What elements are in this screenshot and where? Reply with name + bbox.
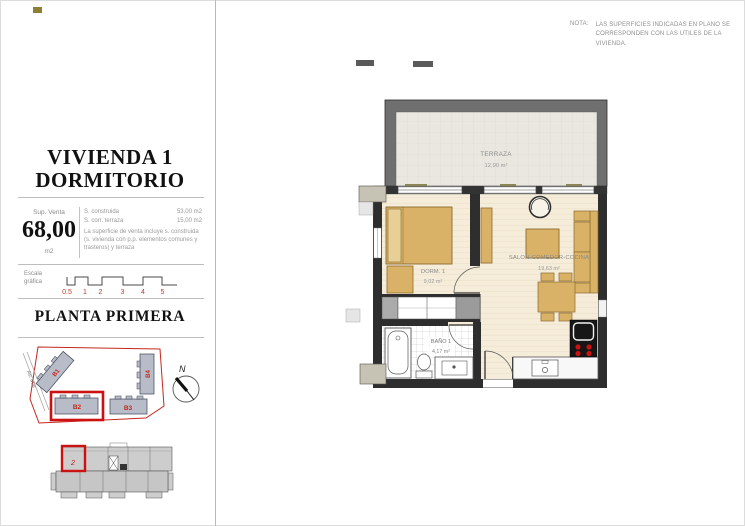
graphic-scale-label: Escala gráfica — [24, 271, 42, 287]
wardrobe-wall-bottom — [382, 319, 480, 322]
note-line-2: CORRESPONDEN CON LAS UTILES DE LA VIVIEN… — [596, 30, 745, 49]
north-arrow: N — [173, 364, 199, 402]
surface-footnote: La superficie de venta incluye s. constr… — [84, 228, 202, 252]
surface-note-disclaimer: NOTA: LAS SUPERFICIES INDICADAS EN PLANO… — [570, 21, 745, 49]
exterior-unit-box — [346, 309, 360, 322]
site-plan: Av. Mar B1 B4 B2 — [18, 338, 206, 430]
kitchen-counter — [513, 357, 598, 379]
key-unit-mark: 2 — [70, 460, 75, 467]
sofa — [574, 211, 598, 293]
scale-tick-numbers: 0.5 1 2 3 4 5 — [62, 289, 164, 296]
room-label-bano: BAÑO 1 — [431, 338, 451, 345]
room-label-terraza: TERRAZA — [480, 151, 512, 158]
scale-tick: 3 — [121, 289, 125, 296]
wall-left — [373, 194, 382, 388]
unit-title-line1: VIVIENDA 1 — [15, 146, 205, 169]
scale-label-line1: Escala — [24, 271, 42, 279]
scale-step-line — [67, 277, 177, 285]
toilet — [416, 354, 432, 378]
building-key-plan: 2 — [18, 438, 186, 518]
building-b4: B4 — [137, 354, 154, 394]
graphic-scale-bar: 0.5 1 2 3 4 5 — [55, 266, 190, 298]
room-area-dorm: 9,02 m² — [424, 279, 443, 285]
divider-line — [18, 264, 204, 265]
bed — [386, 207, 452, 264]
scale-tick: 4 — [141, 289, 145, 296]
building-b1: B1 — [34, 349, 74, 392]
building-label: B3 — [124, 405, 133, 412]
scale-label-line2: gráfica — [24, 279, 42, 287]
room-area-salon: 19,63 m² — [538, 266, 560, 272]
room-label-dorm: DORM. 1 — [421, 269, 445, 275]
building-label: B2 — [73, 404, 82, 411]
divider-line — [18, 298, 204, 299]
scale-tick: 5 — [161, 289, 165, 296]
surface-row-label: S. corr. terraza — [84, 217, 123, 226]
wall-bottom-left — [373, 379, 483, 388]
room-area-bano: 4,17 m² — [432, 349, 450, 355]
panel-divider — [215, 0, 216, 526]
page-corner-mark — [33, 7, 42, 13]
north-label: N — [179, 364, 186, 374]
surface-row: S. corr. terraza 15,00 m2 — [84, 217, 202, 226]
sale-surface-value: 68,00 — [20, 217, 78, 244]
entrance-opening — [483, 379, 513, 388]
room-label-salon: SALON-COMEDOR-COCINA — [509, 255, 589, 261]
hall-wardrobe — [382, 297, 480, 319]
left-wall-window — [374, 228, 382, 258]
wall-bath-top — [382, 322, 448, 326]
surface-row-value: 53,00 m2 — [177, 208, 202, 217]
tv-cabinet — [481, 208, 492, 263]
apartment-floor-plan: TERRAZA 12,90 m² — [340, 50, 720, 440]
room-area-terraza: 12,90 m² — [485, 163, 508, 169]
wall-bottom-right — [513, 379, 607, 388]
scale-tick: 2 — [99, 289, 103, 296]
wall-dorm-salon — [470, 194, 480, 266]
surface-row-label: S. construida — [84, 208, 119, 217]
floor-title: PLANTA PRIMERA — [15, 308, 205, 326]
window-glazing — [398, 187, 594, 193]
divider-line — [18, 197, 204, 198]
scale-tick: 1 — [83, 289, 87, 296]
bathroom: BAÑO 1 4,17 m² — [382, 326, 473, 379]
sale-surface-unit: m2 — [20, 248, 78, 255]
scale-tick: 0.5 — [62, 289, 72, 296]
bathroom-vanity — [435, 357, 473, 379]
right-wall-niche — [599, 300, 607, 317]
plan-sheet: NOTA: LAS SUPERFICIES INDICADAS EN PLANO… — [0, 0, 745, 526]
surface-block-divider — [79, 207, 80, 258]
surface-rows: S. construida 53,00 m2 S. corr. terraza … — [84, 208, 202, 225]
note-prefix: NOTA: — [570, 21, 589, 49]
building-b2-highlighted: B2 — [51, 392, 103, 420]
note-line-1: LAS SUPERFICIES INDICADAS EN PLANO SE — [596, 21, 745, 30]
wall-right — [598, 194, 607, 388]
wardrobe-wall-top — [382, 294, 480, 297]
sale-surface-label: Sup. Venta — [20, 209, 78, 216]
bathtub — [385, 328, 411, 378]
terrace: TERRAZA 12,90 m² — [385, 100, 607, 186]
wall-bath-right — [473, 322, 481, 379]
upper-wall-stubs — [356, 60, 433, 67]
building-b3: B3 — [110, 396, 147, 414]
dresser — [387, 266, 413, 293]
unit-title-line2: DORMITORIO — [15, 169, 205, 192]
surface-row: S. construida 53,00 m2 — [84, 208, 202, 217]
unit-title: VIVIENDA 1 DORMITORIO — [15, 146, 205, 191]
surface-row-value: 15,00 m2 — [177, 217, 202, 226]
cooktop — [570, 320, 597, 357]
building-label: B4 — [146, 370, 152, 378]
armchair — [530, 197, 551, 218]
coffee-table — [526, 229, 559, 258]
